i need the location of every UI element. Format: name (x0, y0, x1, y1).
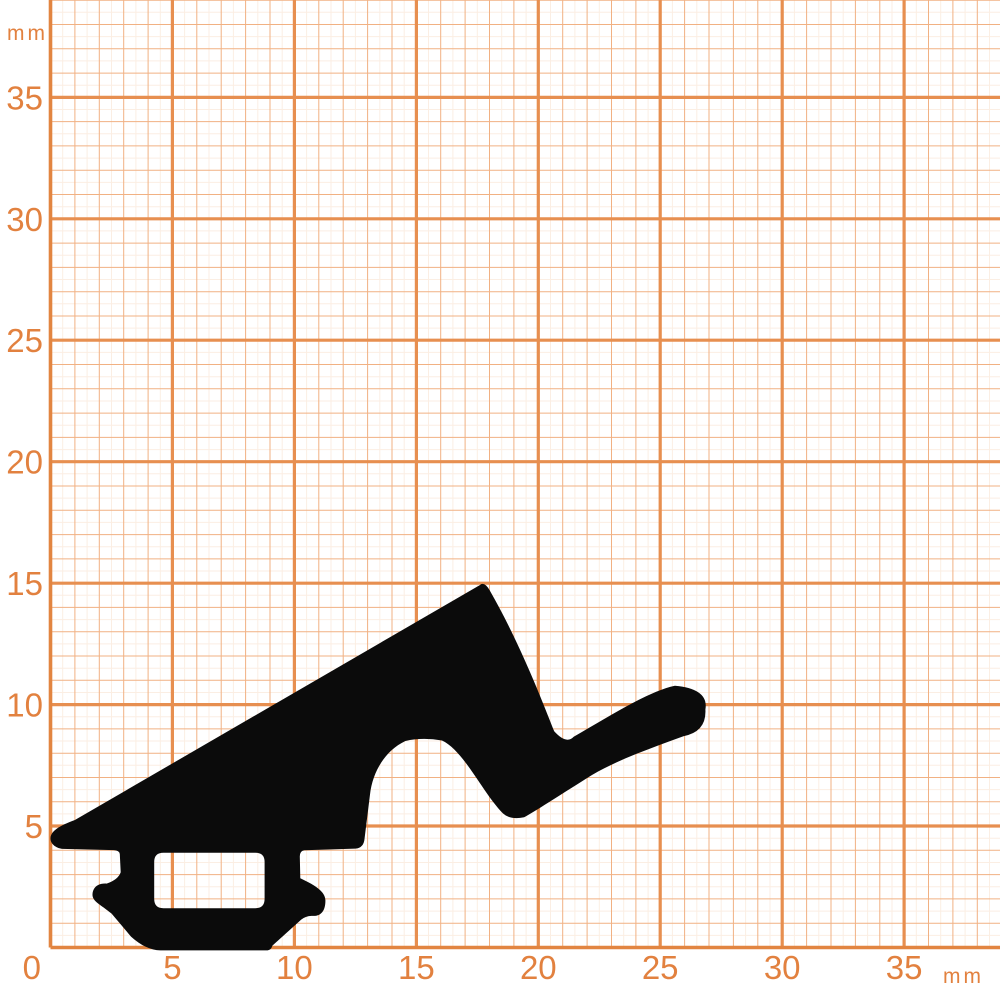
svg-text:mm: mm (7, 22, 48, 45)
svg-text:5: 5 (163, 949, 181, 986)
svg-text:30: 30 (6, 201, 43, 238)
svg-text:30: 30 (764, 949, 801, 986)
svg-text:20: 20 (6, 444, 43, 481)
svg-text:0: 0 (23, 949, 41, 986)
svg-text:10: 10 (276, 949, 313, 986)
svg-text:mm: mm (943, 965, 984, 988)
svg-text:25: 25 (642, 949, 679, 986)
svg-text:20: 20 (520, 949, 557, 986)
svg-text:10: 10 (6, 687, 43, 724)
svg-text:5: 5 (25, 808, 43, 845)
svg-text:35: 35 (6, 79, 43, 116)
svg-text:25: 25 (6, 322, 43, 359)
svg-text:35: 35 (886, 949, 923, 986)
svg-text:15: 15 (398, 949, 435, 986)
svg-text:15: 15 (6, 565, 43, 602)
